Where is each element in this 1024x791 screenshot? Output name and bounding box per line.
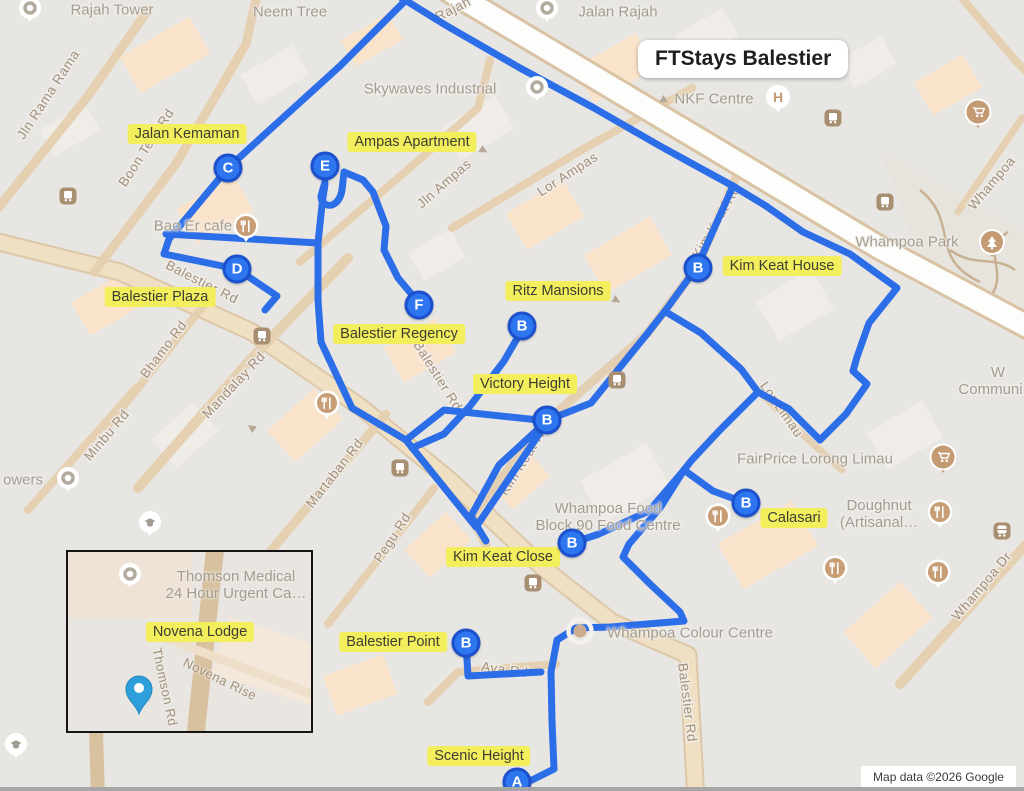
poi-label-food-centre: Whampoa FoodBlock 90 Food Centre [535, 501, 680, 535]
property-label-kim-keat-close: Kim Keat Close [446, 547, 560, 567]
property-label-scenic-height: Scenic Height [427, 746, 530, 766]
svg-text:H: H [773, 89, 783, 105]
bus-stop-icon[interactable] [392, 460, 409, 477]
thomson-medical-pin-icon [117, 561, 143, 587]
marker-b-ritz-mansions[interactable]: B [508, 312, 537, 341]
map-canvas[interactable]: Jln Rama Rama Boon Teck Rd Balestier Rd … [0, 0, 1024, 791]
property-label-jalan-kemaman: Jalan Kemaman [128, 124, 247, 144]
property-label-novena-lodge: Novena Lodge [146, 622, 254, 642]
marker-b-calasari[interactable]: B [732, 489, 761, 518]
poi-label-rajah-tower: Rajah Tower [70, 3, 153, 20]
poi-label-nkf-centre: NKF Centre [674, 92, 753, 109]
poi-label-bao-er-cafe: Bao Er cafe [154, 219, 232, 236]
poi-label-colour-centre: Whampoa Colour Centre [607, 626, 773, 643]
bus-stop-icon[interactable] [254, 328, 271, 345]
marker-c-jalan-kemaman[interactable]: C [214, 154, 243, 183]
property-label-calasari: Calasari [760, 508, 827, 528]
property-label-victory-height: Victory Height [473, 374, 577, 394]
train-station-icon[interactable] [994, 523, 1011, 540]
property-label-balestier-point: Balestier Point [339, 632, 447, 652]
bus-stop-icon[interactable] [877, 194, 894, 211]
bus-stop-icon[interactable] [525, 575, 542, 592]
marker-b-kim-keat-house[interactable]: B [684, 254, 713, 283]
novena-lodge-pin-icon[interactable] [122, 670, 156, 716]
property-label-balestier-regency: Balestier Regency [333, 324, 465, 344]
page-title: FTStays Balestier [638, 40, 848, 78]
poi-label-fairprice: FairPrice Lorong Limau [737, 452, 893, 469]
marker-b-victory-height[interactable]: B [533, 406, 562, 435]
bus-stop-icon[interactable] [60, 188, 77, 205]
poi-label-towers: owers [3, 473, 43, 490]
property-label-ampas-apartment: Ampas Apartment [347, 132, 476, 152]
property-label-balestier-plaza: Balestier Plaza [105, 287, 216, 307]
marker-d-balestier-plaza[interactable]: D [223, 255, 252, 284]
bus-stop-icon[interactable] [609, 372, 626, 389]
marker-b-kim-keat-close[interactable]: B [558, 529, 587, 558]
poi-label-skywaves: Skywaves Industrial [364, 82, 497, 99]
marker-e-ampas-apartment[interactable]: E [311, 152, 340, 181]
marker-f-balestier-regency[interactable]: F [405, 291, 434, 320]
property-label-ritz-mansions: Ritz Mansions [505, 281, 610, 301]
poi-label-thomson-medical: Thomson Medical24 Hour Urgent Ca… [166, 568, 307, 603]
marker-b-balestier-point[interactable]: B [452, 629, 481, 658]
poi-label-jalan-rajah: Jalan Rajah [578, 5, 657, 22]
map-attribution: Map data ©2026 Google [861, 766, 1016, 788]
poi-label-whampoa-park: Whampoa Park [855, 235, 958, 252]
bus-stop-icon[interactable] [825, 110, 842, 127]
property-label-kim-keat-house: Kim Keat House [723, 256, 842, 276]
poi-label-community: WCommuni… [958, 365, 1024, 399]
bottom-edge [0, 787, 1024, 791]
novena-inset-map[interactable]: Thomson Medical24 Hour Urgent Ca… Novena… [66, 550, 313, 733]
poi-label-doughnut: Doughnut(Artisanal… [840, 498, 918, 532]
poi-label-neem-tree: Neem Tree [253, 5, 327, 22]
